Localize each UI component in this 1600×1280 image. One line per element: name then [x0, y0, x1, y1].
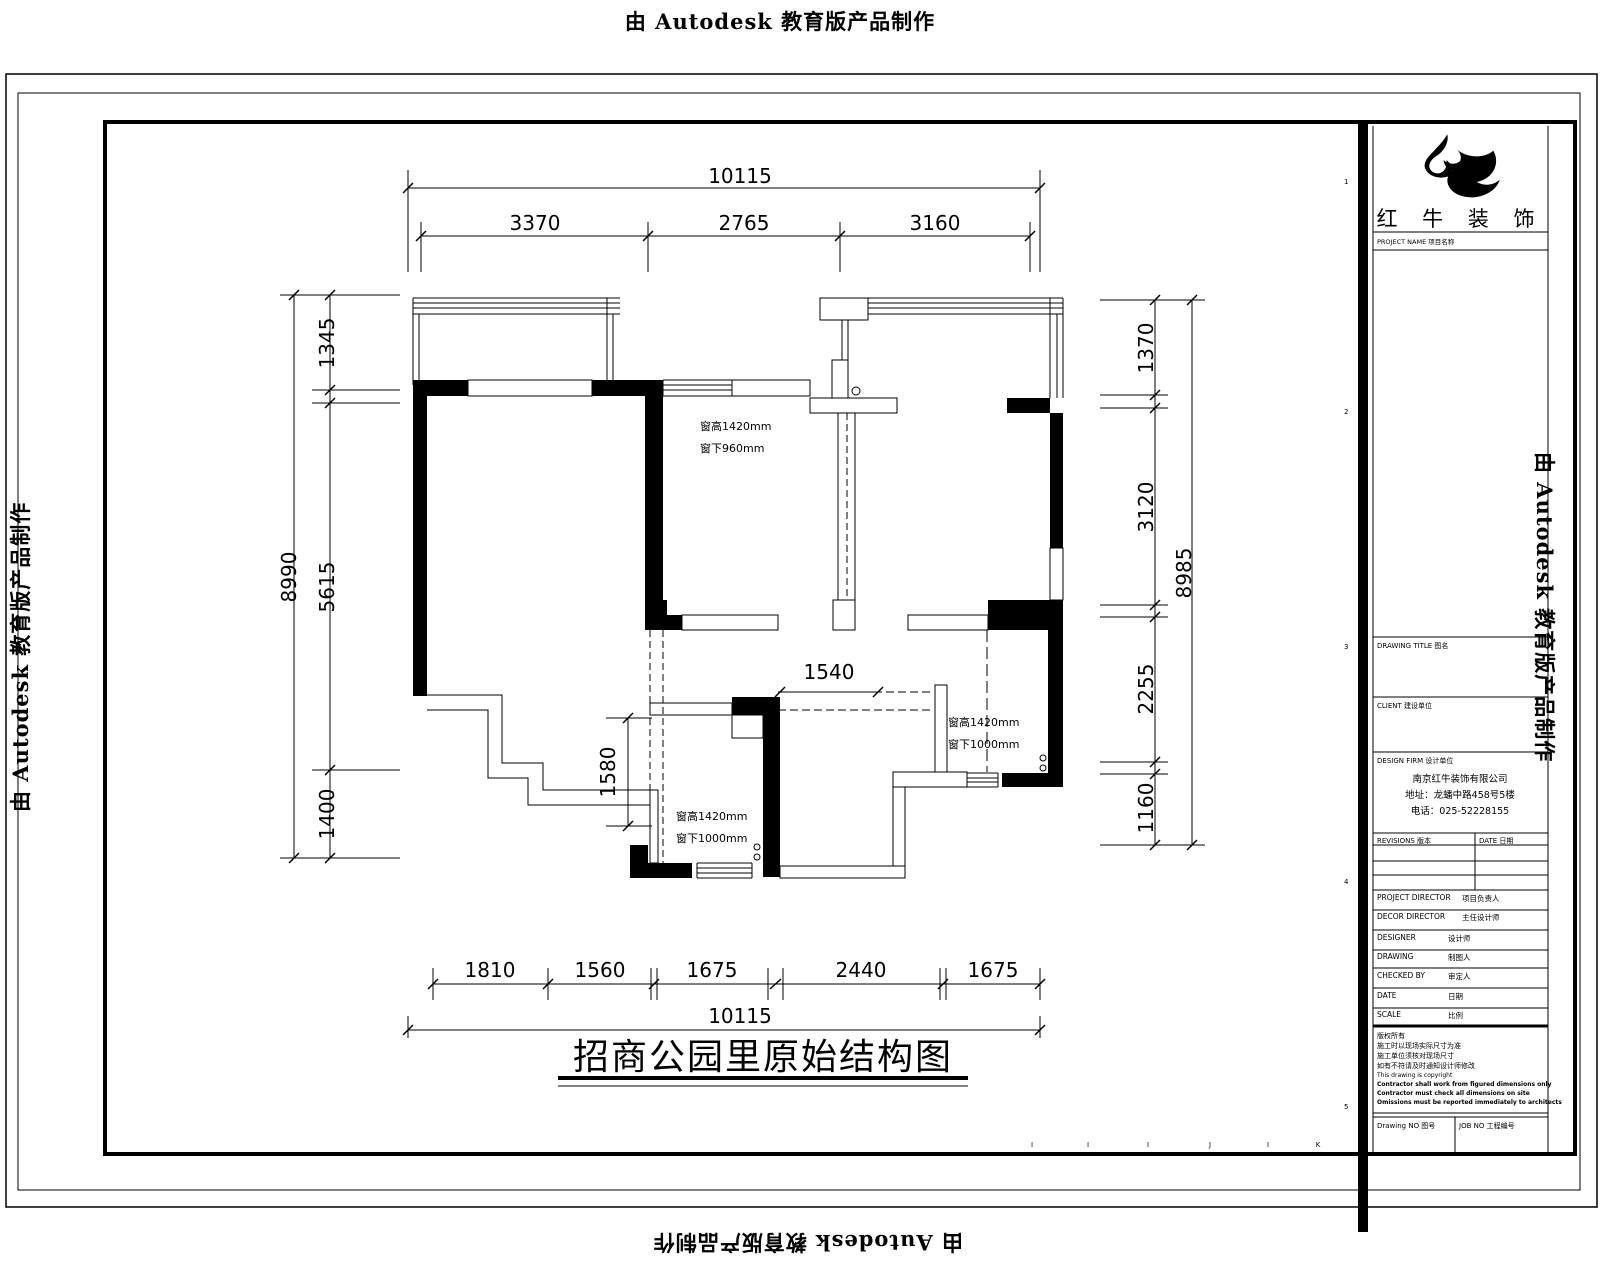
watermark-bottom: 由 Autodesk 教育版产品制作 [653, 1228, 963, 1258]
company-phone: 电话：025-52228155 [1411, 803, 1509, 817]
dim-right-segment-0: 1370 [1134, 323, 1158, 374]
row-checked-by-en: CHECKED BY [1377, 971, 1425, 980]
note-line-1: 施工时以现场实际尺寸为准 [1377, 1041, 1461, 1051]
dim-bottom-segment-0: 1810 [465, 958, 516, 982]
grid-number-3: 4 [1344, 878, 1348, 886]
company-name: 南京红牛装饰有限公司 [1412, 771, 1507, 785]
dim-top-segment-1: 2765 [719, 211, 770, 235]
dim-bottom-segment-1: 1560 [575, 958, 626, 982]
dim-interior-height: 1580 [596, 747, 620, 798]
logo-caption: PROJECT NAME 项目名称 [1377, 236, 1454, 246]
brand-logo-icon [1425, 134, 1500, 197]
grid-letter-1: I [1087, 1141, 1089, 1149]
brand-logo-text: 红 牛 装 饰 [1376, 203, 1543, 233]
window-annotation-bottom-line1: 窗高1420mm [676, 808, 747, 824]
grid-number-2: 3 [1344, 643, 1348, 651]
row-date-cn: 日期 [1448, 991, 1463, 1002]
dim-left-overall: 8990 [277, 552, 301, 603]
dim-interior-width: 1540 [804, 660, 855, 684]
watermark-top: 由 Autodesk 教育版产品制作 [625, 6, 935, 36]
window-annotation-bottom-line2: 窗下1000mm [676, 830, 747, 846]
dim-bottom-segment-4: 1675 [968, 958, 1019, 982]
window-annotation-right-line2: 窗下1000mm [948, 736, 1019, 752]
drawing-sheet: 由 Autodesk 教育版产品制作 由 Autodesk 教育版产品制作 由 … [0, 0, 1600, 1280]
grid-letter-5: K [1316, 1141, 1321, 1149]
watermark-left: 由 Autodesk 教育版产品制作 [5, 502, 35, 812]
design-firm-label: DESIGN FIRM 设计单位 [1377, 756, 1453, 766]
note-line-4: This drawing is copyright [1377, 1072, 1452, 1079]
row-project-director-cn: 项目负责人 [1462, 893, 1500, 904]
grid-letter-4: I [1267, 1141, 1269, 1149]
grid-number-1: 2 [1344, 408, 1348, 416]
dim-right-segment-1: 3120 [1134, 482, 1158, 533]
client-label: CLIENT 建设单位 [1377, 701, 1432, 711]
grid-letter-3: J [1209, 1141, 1211, 1149]
dim-left-segment-2: 1400 [315, 789, 339, 840]
dim-right-segment-3: 1160 [1134, 783, 1158, 834]
row-designer-en: DESIGNER [1377, 933, 1416, 942]
dim-bottom-segment-3: 2440 [836, 958, 887, 982]
grid-letter-0: I [1031, 1141, 1033, 1149]
note-line-7: Omissions must be reported immediately t… [1377, 1099, 1562, 1106]
grid-letter-2: I [1147, 1141, 1149, 1149]
row-drawing-cn: 制图人 [1448, 952, 1471, 963]
note-line-2: 施工单位须核对现场尺寸 [1377, 1051, 1454, 1061]
row-drawing-en: DRAWING [1377, 952, 1413, 961]
partitions [427, 413, 855, 805]
dashed-lines [650, 413, 987, 863]
job-no-label: JOB NO 工程编号 [1459, 1121, 1515, 1131]
dim-bottom-overall: 10115 [708, 1004, 772, 1028]
dim-right-overall: 8985 [1172, 548, 1196, 599]
row-checked-by-cn: 审定人 [1448, 971, 1471, 982]
dim-left-segment-1: 5615 [315, 562, 339, 613]
row-project-director-en: PROJECT DIRECTOR [1377, 893, 1451, 902]
window-annotation-top-line2: 窗下960mm [700, 440, 764, 456]
grid-number-0: 1 [1344, 178, 1348, 186]
row-scale-en: SCALE [1377, 1010, 1401, 1019]
drawing-no-label: Drawing NO 图号 [1377, 1121, 1435, 1131]
company-address: 地址：龙蟠中路458号5楼 [1405, 787, 1515, 801]
window-annotation-top-line1: 窗高1420mm [700, 418, 771, 434]
page-title: 招商公园里原始结构图 [573, 1028, 953, 1080]
dim-right-segment-2: 2255 [1134, 664, 1158, 715]
drawing-title-label: DRAWING TITLE 图名 [1377, 641, 1448, 651]
watermark-right: 由 Autodesk 教育版产品制作 [1530, 452, 1560, 762]
dim-top-overall: 10115 [708, 164, 772, 188]
floor-plan-linework [0, 0, 1600, 1280]
grid-number-4: 5 [1344, 1103, 1348, 1111]
dim-bottom-segment-2: 1675 [687, 958, 738, 982]
dim-top-segment-0: 3370 [510, 211, 561, 235]
row-decor-director-cn: 主任设计师 [1462, 912, 1500, 923]
date-column-label: DATE 日期 [1479, 836, 1513, 846]
window-annotation-right-line1: 窗高1420mm [948, 714, 1019, 730]
row-decor-director-en: DECOR DIRECTOR [1377, 912, 1445, 921]
note-line-6: Contractor must check all dimensions on … [1377, 1090, 1530, 1097]
row-date-en: DATE [1377, 991, 1397, 1000]
row-scale-cn: 比例 [1448, 1010, 1463, 1021]
dim-left-segment-0: 1345 [315, 318, 339, 369]
note-line-5: Contractor shall work from figured dimen… [1377, 1081, 1552, 1088]
dim-top-segment-2: 3160 [910, 211, 961, 235]
revisions-label: REVISIONS 版本 [1377, 836, 1431, 846]
note-line-3: 如有不符请及时通知设计师修改 [1377, 1061, 1475, 1071]
row-designer-cn: 设计师 [1448, 933, 1471, 944]
note-line-0: 版权所有 [1377, 1031, 1405, 1041]
